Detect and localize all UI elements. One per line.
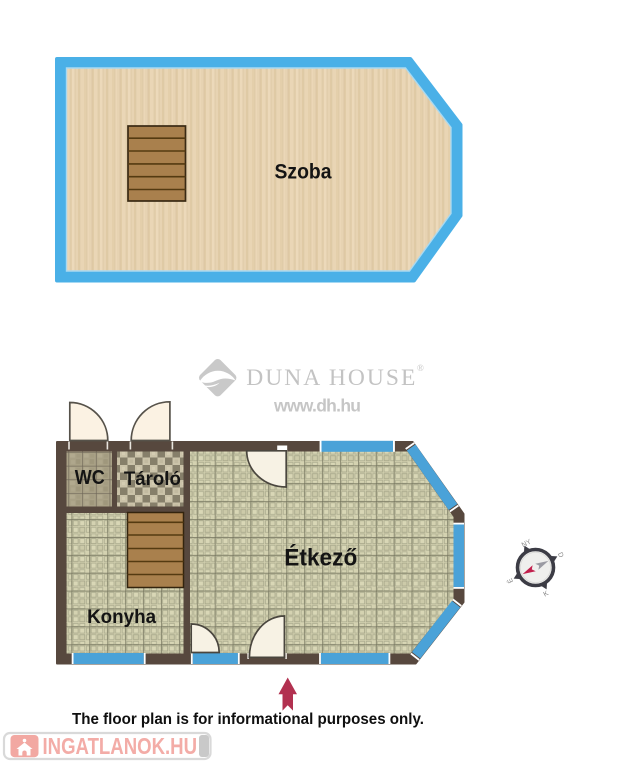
svg-text:Szoba: Szoba xyxy=(275,161,332,184)
svg-text:INGATLANOK.HU: INGATLANOK.HU xyxy=(43,733,198,759)
svg-text:Étkező: Étkező xyxy=(284,543,357,571)
svg-text:Tároló: Tároló xyxy=(124,468,181,490)
svg-text:®: ® xyxy=(417,363,424,373)
svg-text:Konyha: Konyha xyxy=(87,606,157,628)
svg-text:WC: WC xyxy=(75,466,105,489)
svg-text:DUNA HOUSE: DUNA HOUSE xyxy=(246,365,415,391)
svg-text:The floor plan is for informat: The floor plan is for informational purp… xyxy=(72,711,424,728)
svg-text:www.dh.hu: www.dh.hu xyxy=(273,396,361,416)
